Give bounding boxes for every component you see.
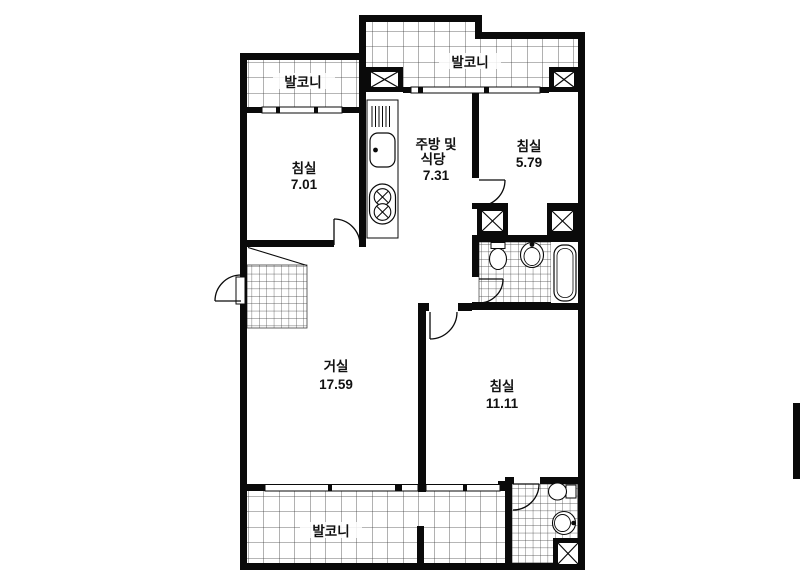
wall-bathtop-bottom xyxy=(472,302,585,310)
bedroom-nw-label: 침실 xyxy=(292,161,317,176)
kitchen-counter xyxy=(367,100,398,238)
wall-bathbottom-top-b xyxy=(540,477,585,484)
floor-plan-svg: 발코니 발코니 발코니 침실 7.01 주방 및 식당 7.31 침실 5.79… xyxy=(0,0,800,586)
wall-west xyxy=(240,53,247,570)
living-room-area: 17.59 xyxy=(319,377,353,392)
balcony-north-label: 발코니 xyxy=(451,54,488,70)
window-balcony-west xyxy=(262,107,342,113)
shaft-bathtop-left xyxy=(477,206,508,236)
kitchen-area: 7.31 xyxy=(423,168,450,183)
right-edge-artifact xyxy=(793,403,800,479)
window-bedroomse-south xyxy=(426,485,500,492)
bedroom-ne-area: 5.79 xyxy=(516,155,542,170)
shaft-north-right xyxy=(549,67,579,92)
wall-bathtop-top xyxy=(472,235,578,242)
shaft-bathtop-right xyxy=(547,206,578,236)
wall-stub-e xyxy=(247,484,265,491)
wall-south xyxy=(240,563,585,570)
toilet-icon xyxy=(490,243,507,270)
wall-bedroomnw-kitchen xyxy=(359,15,366,247)
kitchen-label-line1: 주방 및 xyxy=(415,136,456,152)
balcony-south-floor xyxy=(247,491,507,564)
toilet-icon xyxy=(549,483,577,500)
entry-hall-floor xyxy=(247,248,307,329)
door-entrance xyxy=(215,275,245,304)
balcony-west-label: 발코니 xyxy=(284,74,321,90)
kitchen-label-line2: 식당 xyxy=(421,151,446,167)
shaft-bathbottom xyxy=(553,538,583,569)
wall-stub-d xyxy=(540,87,549,93)
sink-icon xyxy=(553,512,576,535)
wall-bedroomse-top-b xyxy=(458,303,472,311)
bedroom-nw-area: 7.01 xyxy=(291,177,318,192)
wall-stub-b xyxy=(342,107,359,113)
kitchen-sink-icon xyxy=(370,133,395,167)
window-living-south xyxy=(265,485,418,492)
door-bedroom-nw xyxy=(334,219,360,245)
wall-living-bedroomse xyxy=(418,303,426,492)
balcony-south-label: 발코니 xyxy=(312,523,349,539)
wall-bedroomnw-bottom xyxy=(240,240,334,247)
door-bedroom-ne xyxy=(479,180,505,206)
stove-icon xyxy=(370,184,396,224)
bathtub-icon xyxy=(551,242,578,303)
bedroom-se-label: 침실 xyxy=(490,379,515,394)
wall-kitchen-bedroomne xyxy=(472,92,479,178)
wall-balcony-west-top xyxy=(240,53,366,60)
sink-icon xyxy=(521,242,544,267)
shaft-north-left xyxy=(366,67,403,92)
wall-east xyxy=(578,32,585,570)
bedroom-ne-label: 침실 xyxy=(517,139,542,154)
living-room-label: 거실 xyxy=(324,359,349,374)
floor-plan-canvas: 발코니 발코니 발코니 침실 7.01 주방 및 식당 7.31 침실 5.79… xyxy=(0,0,800,586)
wall-stub-c xyxy=(403,87,411,93)
wall-stub-a xyxy=(247,107,262,113)
door-bedroom-se xyxy=(430,312,457,339)
entry-closet-diagonal xyxy=(248,248,307,266)
wall-balcony-south-divider xyxy=(417,526,424,570)
wall-balcony-north-top-right xyxy=(475,32,585,39)
wall-bathtop-left xyxy=(472,235,479,277)
window-balcony-north xyxy=(411,87,540,93)
bedroom-se-area: 11.11 xyxy=(486,396,519,411)
wall-balcony-north-top-left xyxy=(359,15,482,22)
